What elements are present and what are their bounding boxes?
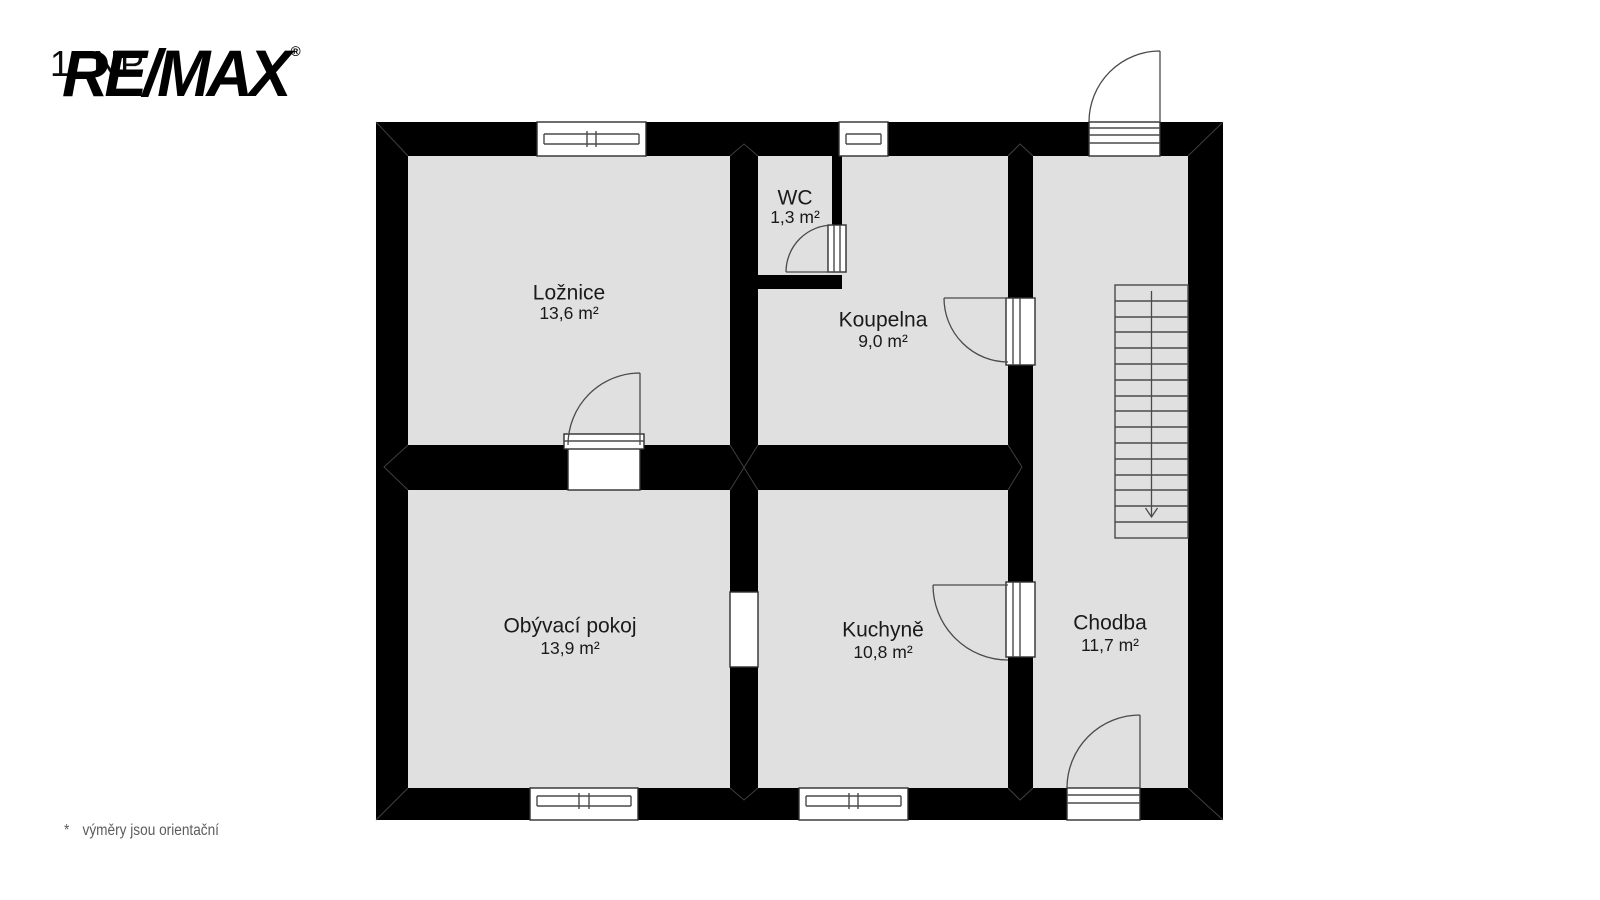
footnote: * výměry jsou orientační	[64, 822, 219, 840]
passage-opening	[730, 592, 758, 667]
room-area-kuchyne: 10,8 m²	[853, 642, 912, 662]
room-label-loznice: Ložnice	[533, 282, 605, 305]
window-loznice	[537, 122, 646, 156]
room-label-kuchyne: Kuchyně	[842, 619, 924, 642]
wall-vertical-right	[1008, 156, 1033, 788]
room-area-loznice: 13,6 m²	[539, 303, 598, 323]
window-obyvaci-pokoj	[530, 788, 638, 820]
staircase	[1115, 285, 1188, 538]
window-kuchyne	[799, 788, 908, 820]
room-label-obyvaci-pokoj: Obývací pokoj	[503, 615, 636, 638]
room-area-wc: 1,3 m²	[770, 207, 820, 227]
window-koupelna	[839, 122, 888, 156]
room-area-chodba: 11,7 m²	[1081, 635, 1139, 655]
room-label-koupelna: Koupelna	[839, 309, 928, 332]
wall-left	[376, 122, 408, 820]
wall-horizontal-middle	[408, 445, 1008, 490]
floor-plan-drawing: Ložnice 13,6 m² WC 1,3 m² Koupelna 9,0 m…	[0, 0, 1600, 900]
wall-right	[1188, 122, 1223, 820]
room-area-koupelna: 9,0 m²	[858, 331, 908, 351]
floor-plan-page: 1. NP RE/MAX®	[0, 0, 1600, 900]
wall-wc-bottom	[758, 275, 842, 289]
room-label-chodba: Chodba	[1073, 612, 1147, 635]
footnote-asterisk: *	[64, 822, 69, 840]
entrance-door	[1089, 51, 1160, 156]
wall-wc-partition	[832, 156, 842, 225]
room-area-obyvaci-pokoj: 13,9 m²	[540, 638, 599, 658]
footnote-text: výměry jsou orientační	[83, 822, 219, 840]
